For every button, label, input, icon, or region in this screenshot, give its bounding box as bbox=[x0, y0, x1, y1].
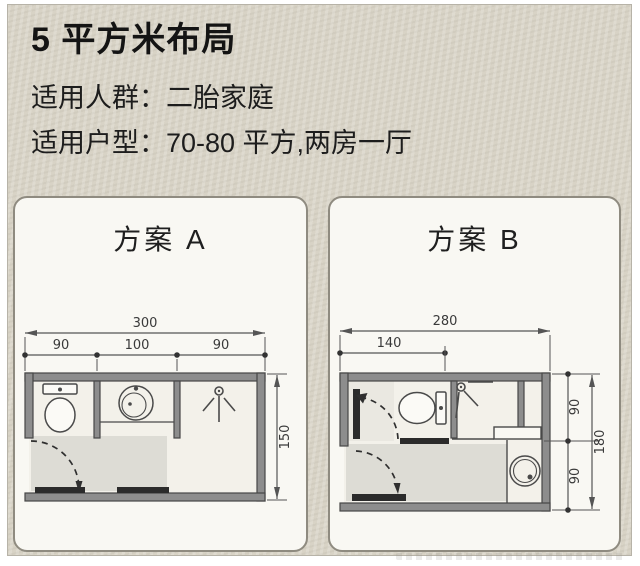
audience-line: 适用人群：二胎家庭 bbox=[31, 76, 274, 115]
watermark bbox=[396, 553, 626, 560]
house-type-line: 适用户型：70-80 平方,两房一厅 bbox=[31, 121, 412, 160]
room-a-floor-shade bbox=[31, 436, 167, 491]
dimension-segments bbox=[22, 352, 268, 371]
dim-label-height-b: 180 bbox=[593, 430, 608, 455]
plan-a-title: 方案 A bbox=[15, 218, 306, 258]
dim-label-seg-left-a: 90 bbox=[53, 338, 70, 353]
partition-2 bbox=[518, 381, 524, 427]
door-threshold-middle bbox=[117, 487, 169, 493]
wall-right bbox=[542, 373, 550, 511]
door-threshold-left bbox=[35, 487, 85, 493]
floorplan-a: 300 90 100 90 150 bbox=[17, 301, 299, 551]
toilet-icon bbox=[43, 384, 77, 432]
door-leaf-bottom bbox=[352, 494, 406, 501]
partition-1 bbox=[94, 381, 100, 438]
door-threshold bbox=[400, 438, 449, 444]
dim-label-seg-mid-a: 100 bbox=[125, 338, 150, 353]
floorplan-b: 280 140 90 90 180 bbox=[332, 301, 618, 551]
dim-label-seg-left-b: 140 bbox=[377, 336, 402, 351]
wall-bottom bbox=[25, 493, 265, 501]
dim-label-height-a: 150 bbox=[278, 425, 293, 450]
dim-label-seg-bottom-b: 90 bbox=[568, 468, 583, 485]
wall-left-stub bbox=[340, 373, 348, 446]
page-title: 5 平方米布局 bbox=[31, 12, 236, 61]
dim-label-seg-top-b: 90 bbox=[568, 399, 583, 416]
toilet-icon bbox=[399, 392, 446, 424]
partition-1 bbox=[451, 381, 457, 438]
wall-left-stub bbox=[25, 373, 33, 438]
partition-2 bbox=[174, 381, 180, 438]
wall-top bbox=[25, 373, 265, 381]
wall-bottom bbox=[340, 503, 550, 511]
dim-label-total-width-a: 300 bbox=[133, 316, 158, 331]
plan-b-panel: 方案 B bbox=[328, 196, 621, 552]
room-b-floor-shade bbox=[346, 444, 507, 501]
wall-right bbox=[257, 373, 265, 501]
wall-top bbox=[340, 373, 550, 381]
plan-a-panel: 方案 A bbox=[13, 196, 308, 552]
dim-label-total-width-b: 280 bbox=[433, 314, 458, 329]
dim-label-seg-right-a: 90 bbox=[213, 338, 230, 353]
plan-b-title: 方案 B bbox=[330, 218, 619, 258]
